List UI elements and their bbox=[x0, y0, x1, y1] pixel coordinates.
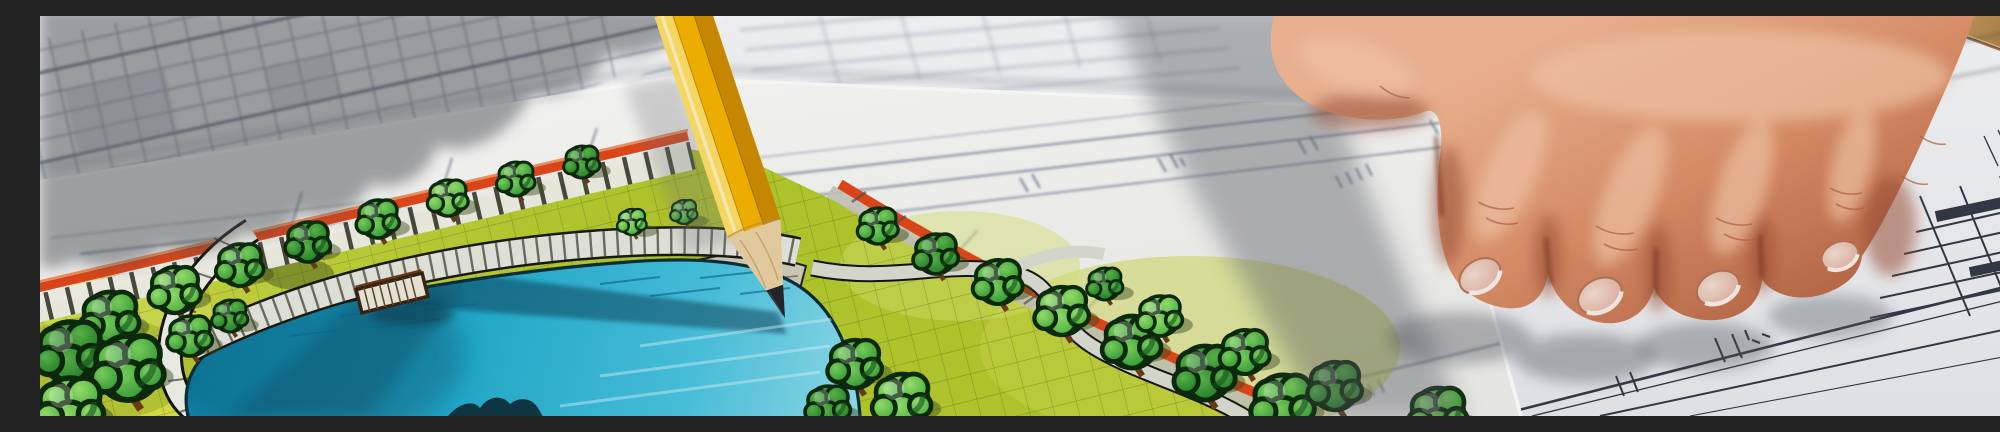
vignette bbox=[40, 16, 2000, 416]
photo-landscape-plan bbox=[40, 16, 2000, 416]
